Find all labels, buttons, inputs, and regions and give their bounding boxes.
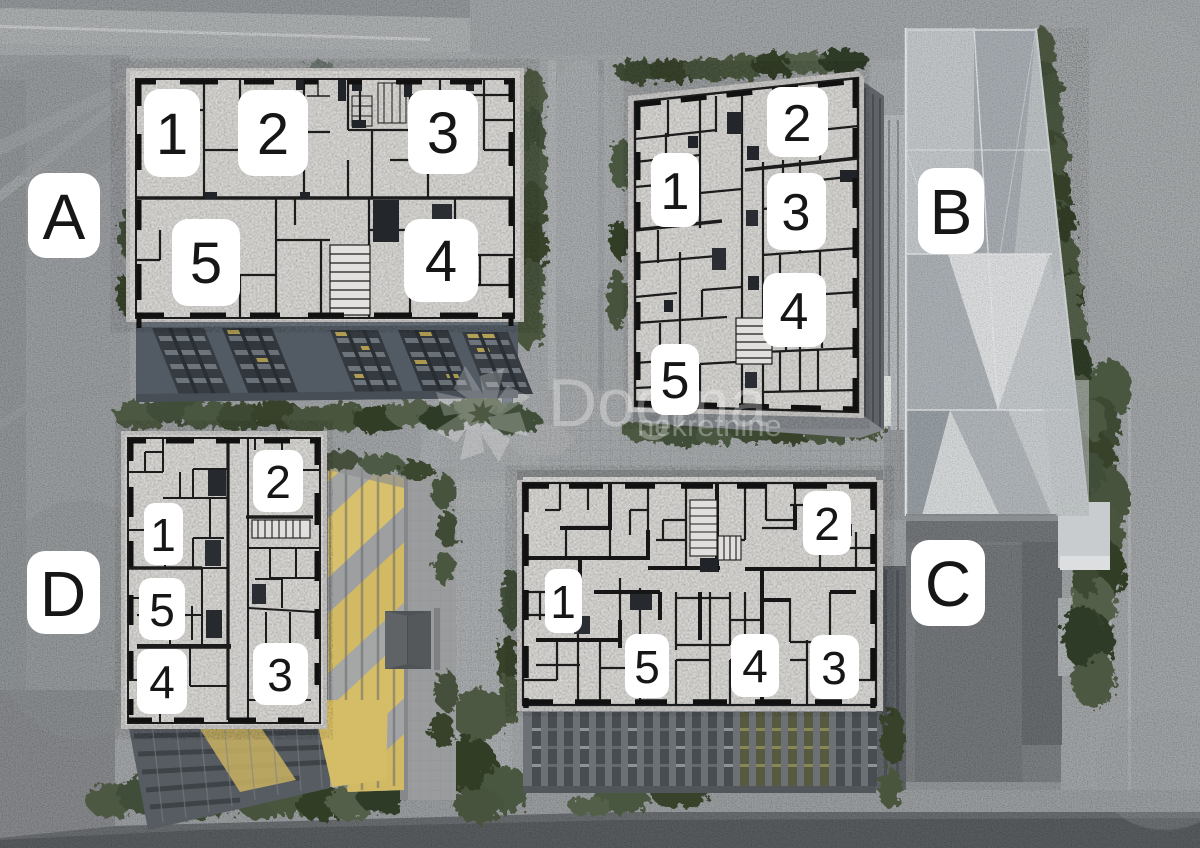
svg-text:2: 2 — [257, 102, 289, 167]
svg-text:5: 5 — [190, 231, 222, 296]
svg-text:D: D — [40, 558, 86, 630]
svg-text:3: 3 — [267, 649, 293, 701]
svg-text:1: 1 — [550, 576, 576, 628]
svg-text:4: 4 — [425, 229, 457, 294]
svg-text:1: 1 — [156, 102, 188, 167]
svg-text:4: 4 — [149, 656, 175, 708]
svg-text:B: B — [930, 176, 973, 248]
svg-text:5: 5 — [149, 584, 175, 636]
svg-text:4: 4 — [742, 640, 768, 692]
svg-text:C: C — [925, 548, 971, 620]
svg-text:3: 3 — [427, 101, 459, 166]
svg-text:3: 3 — [821, 642, 847, 694]
svg-text:A: A — [43, 181, 86, 253]
svg-text:1: 1 — [661, 163, 690, 221]
svg-text:1: 1 — [150, 509, 176, 561]
svg-text:5: 5 — [634, 641, 660, 693]
svg-text:3: 3 — [782, 184, 811, 242]
svg-text:5: 5 — [661, 352, 690, 410]
svg-text:2: 2 — [265, 456, 291, 508]
svg-text:2: 2 — [783, 95, 812, 153]
svg-text:4: 4 — [780, 283, 809, 341]
svg-text:2: 2 — [814, 498, 840, 550]
